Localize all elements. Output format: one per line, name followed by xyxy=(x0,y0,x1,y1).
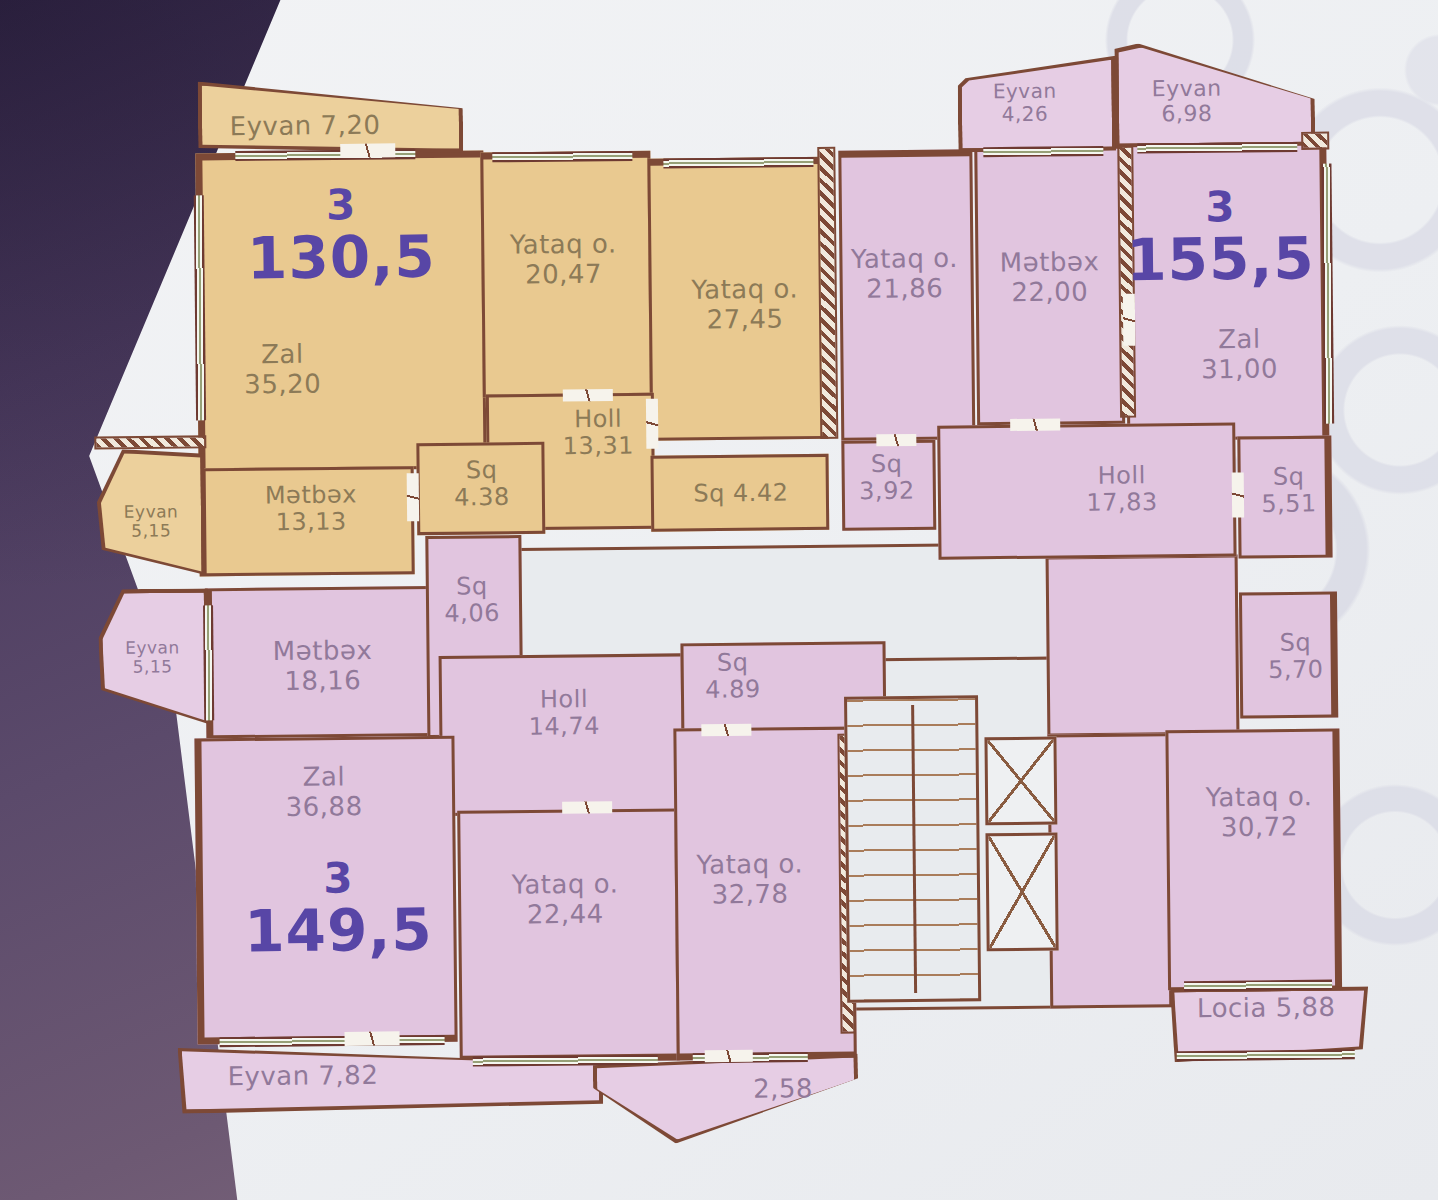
stairs xyxy=(844,695,981,1002)
label-a130-yataq-1: Yataq o. 20,47 xyxy=(510,229,617,289)
hatch-wall xyxy=(94,435,206,449)
label-a130-unit: 3 130,5 xyxy=(246,182,436,289)
door xyxy=(340,143,395,158)
floor-plan: Eyvan 7,20 3 130,5 Zal 35,20 Yataq o. 20… xyxy=(0,0,1438,1200)
label-a130-eyvan-side: Eyvan 5,15 xyxy=(124,502,179,541)
elevator-1 xyxy=(984,736,1057,825)
label-a149-sq-1: Sq 4,06 xyxy=(444,573,500,628)
a149-total-area: 149,5 xyxy=(244,900,433,963)
room-a155-corridor-lower xyxy=(1047,733,1172,1008)
label-a149-balcony: 2,58 xyxy=(753,1074,813,1104)
label-a130-sq-2: Sq 4.42 xyxy=(693,480,788,508)
door xyxy=(1123,294,1136,346)
elevator-2 xyxy=(985,832,1058,951)
door xyxy=(876,434,916,446)
label-a155-unit: 3 155,5 xyxy=(1125,184,1315,291)
hatch-wall xyxy=(817,147,838,439)
window xyxy=(203,605,214,720)
a155-room-count: 3 xyxy=(1125,184,1314,230)
window xyxy=(663,157,813,169)
label-a130-holl: Holl 13,31 xyxy=(562,406,634,461)
label-a149-holl: Holl 14,74 xyxy=(528,686,600,741)
room-a155-yataq-2 xyxy=(1165,729,1342,991)
window xyxy=(1184,980,1332,992)
label-a155-zal: Zal 31,00 xyxy=(1201,325,1279,385)
a130-room-count: 3 xyxy=(246,182,435,228)
door xyxy=(563,389,613,402)
label-a155-sq-2: Sq 5,51 xyxy=(1261,463,1317,518)
label-a155-yataq-1: Yataq o. 21,86 xyxy=(851,244,958,304)
label-a155-locia: Locia 5,88 xyxy=(1197,993,1336,1024)
a155-total-area: 155,5 xyxy=(1126,228,1315,291)
window xyxy=(473,1055,658,1067)
label-a155-holl: Holl 17,83 xyxy=(1086,462,1158,517)
label-a149-sq-2: Sq 4.89 xyxy=(705,649,761,704)
label-a130-yataq-2: Yataq o. 27,45 xyxy=(691,275,798,335)
label-a149-metbex: Mətbəx 18,16 xyxy=(273,636,373,696)
label-a130-eyvan-top: Eyvan 7,20 xyxy=(229,111,380,142)
door xyxy=(705,1050,753,1063)
window xyxy=(220,1035,445,1047)
label-a155-eyvan-1: Eyvan 4,26 xyxy=(993,80,1057,126)
label-a149-yataq-1: Yataq o. 22,44 xyxy=(511,869,618,929)
label-a149-unit: 3 149,5 xyxy=(243,856,433,963)
window xyxy=(1137,142,1297,154)
label-a149-eyvan-side: Eyvan 5,15 xyxy=(125,638,180,677)
label-a155-sq-1: Sq 3,92 xyxy=(859,451,915,506)
room-a149-yataq-1 xyxy=(457,808,680,1062)
label-a149-eyvan-bottom: Eyvan 7,82 xyxy=(227,1061,378,1092)
door xyxy=(1232,472,1244,517)
room-a155-corridor-upper xyxy=(1046,555,1240,737)
label-a155-yataq-2: Yataq o. 30,72 xyxy=(1206,782,1313,842)
hatch-wall xyxy=(1301,132,1329,150)
label-a149-yataq-2: Yataq o. 32,78 xyxy=(696,850,803,910)
label-a155-sq-3: Sq 5,70 xyxy=(1268,629,1324,684)
balcony-a149-point xyxy=(593,1054,859,1145)
door xyxy=(407,473,420,521)
label-a130-metbex: Mətbəx 13,13 xyxy=(265,481,358,537)
window xyxy=(983,146,1103,157)
door xyxy=(345,1031,400,1046)
door xyxy=(1010,418,1060,431)
window xyxy=(1321,164,1334,424)
a130-total-area: 130,5 xyxy=(247,227,436,290)
label-a130-sq-1: Sq 4.38 xyxy=(454,457,510,512)
window xyxy=(492,151,632,162)
label-a130-zal: Zal 35,20 xyxy=(244,340,322,400)
door xyxy=(562,801,612,814)
label-a155-metbex: Mətbəx 22,00 xyxy=(1000,247,1100,307)
door xyxy=(646,399,659,449)
window xyxy=(1177,1049,1355,1061)
label-a149-zal: Zal 36,88 xyxy=(285,762,363,822)
door xyxy=(701,724,751,737)
label-a155-eyvan-2: Eyvan 6,98 xyxy=(1152,76,1222,127)
a149-room-count: 3 xyxy=(243,856,432,902)
